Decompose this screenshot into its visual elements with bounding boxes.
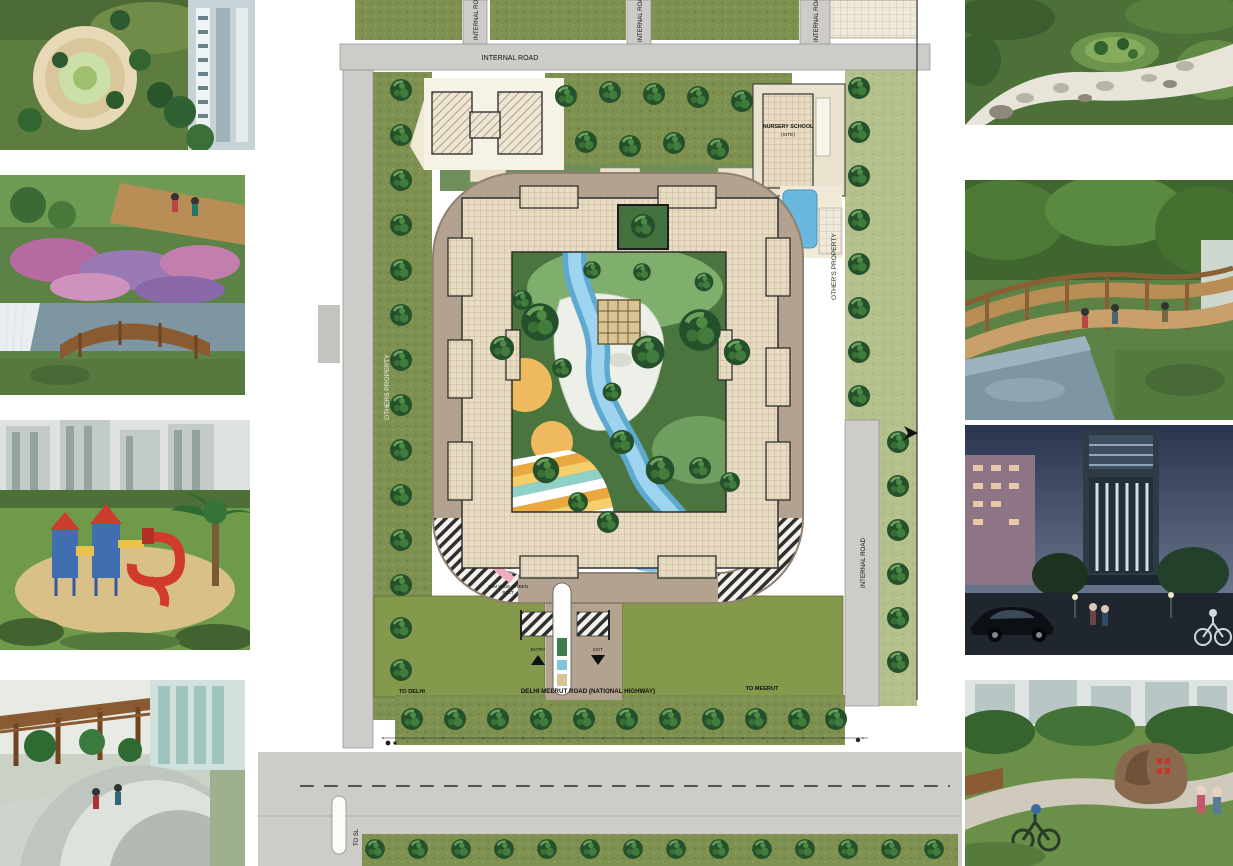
landmark-rock-art [965,680,1233,866]
long-pergola-art [965,180,1233,420]
flower-garden-art [0,175,245,395]
green-belt-label1: 30M WIDE GREEN [488,584,528,589]
photo-pebble-stream [965,0,1233,125]
brochure-page: NURSERY SCHOOL (SITE) [0,0,1233,866]
internal-road-v2-label: INTERNAL ROAD [638,0,644,42]
pergola-grid [598,300,640,344]
photo-pergola-plaza [0,680,245,866]
internal-road-right-label: INTERNAL ROAD [860,538,867,588]
photo-night-waterfall-tower [965,425,1233,655]
photo-landmark-rock-park [965,680,1233,866]
photo-circular-garden-aerial [0,0,255,150]
waterfall-tower [1077,429,1165,585]
internal-road-top-label: INTERNAL ROAD [482,55,539,62]
courtyard-pavilion [618,205,668,249]
others-property-left-label: OTHERS PROPERTY [384,354,391,420]
to-meerut-label: TO MEERUT [746,686,779,692]
green-belt-label2: BELT [502,590,513,595]
palm-canopy [24,730,56,762]
bus-bay [318,305,340,363]
nursery-school-sublabel: (SITE) [781,132,795,138]
site-plan: NURSERY SCHOOL (SITE) [255,0,965,866]
photo-flower-garden-bridge [0,175,245,395]
road-island [332,796,346,854]
entry-label: ENTRY [531,647,546,652]
night-tower-art [965,425,1233,655]
nursery-school: NURSERY SCHOOL (SITE) [753,84,845,196]
speed-breaker-entry [521,612,553,636]
photo-playground [0,420,250,650]
to-sl-label: TO SL [354,828,360,846]
internal-road-v1-label: INTERNAL ROAD [474,0,480,40]
photo-long-pergola [965,180,1233,420]
highway-label: DELHI MEERUT ROAD (NATIONAL HIGHWAY) [521,688,655,695]
twin-tower-block [410,78,564,170]
to-delhi-label: TO DELHI [399,689,425,695]
internal-road-v3-label: INTERNAL ROAD [814,0,820,42]
circular-garden-aerial-art [0,0,255,150]
palm-tree [164,96,196,128]
pergola-plaza-art [0,680,245,866]
exit-label: EXIT [593,647,603,652]
playground-art [0,420,250,650]
others-property-right-label: OTHER'S PROPERTY [831,233,838,300]
speed-breaker-exit [577,612,609,636]
nursery-school-label: NURSERY SCHOOL [763,124,814,130]
pebble-stream-art [965,0,1233,125]
